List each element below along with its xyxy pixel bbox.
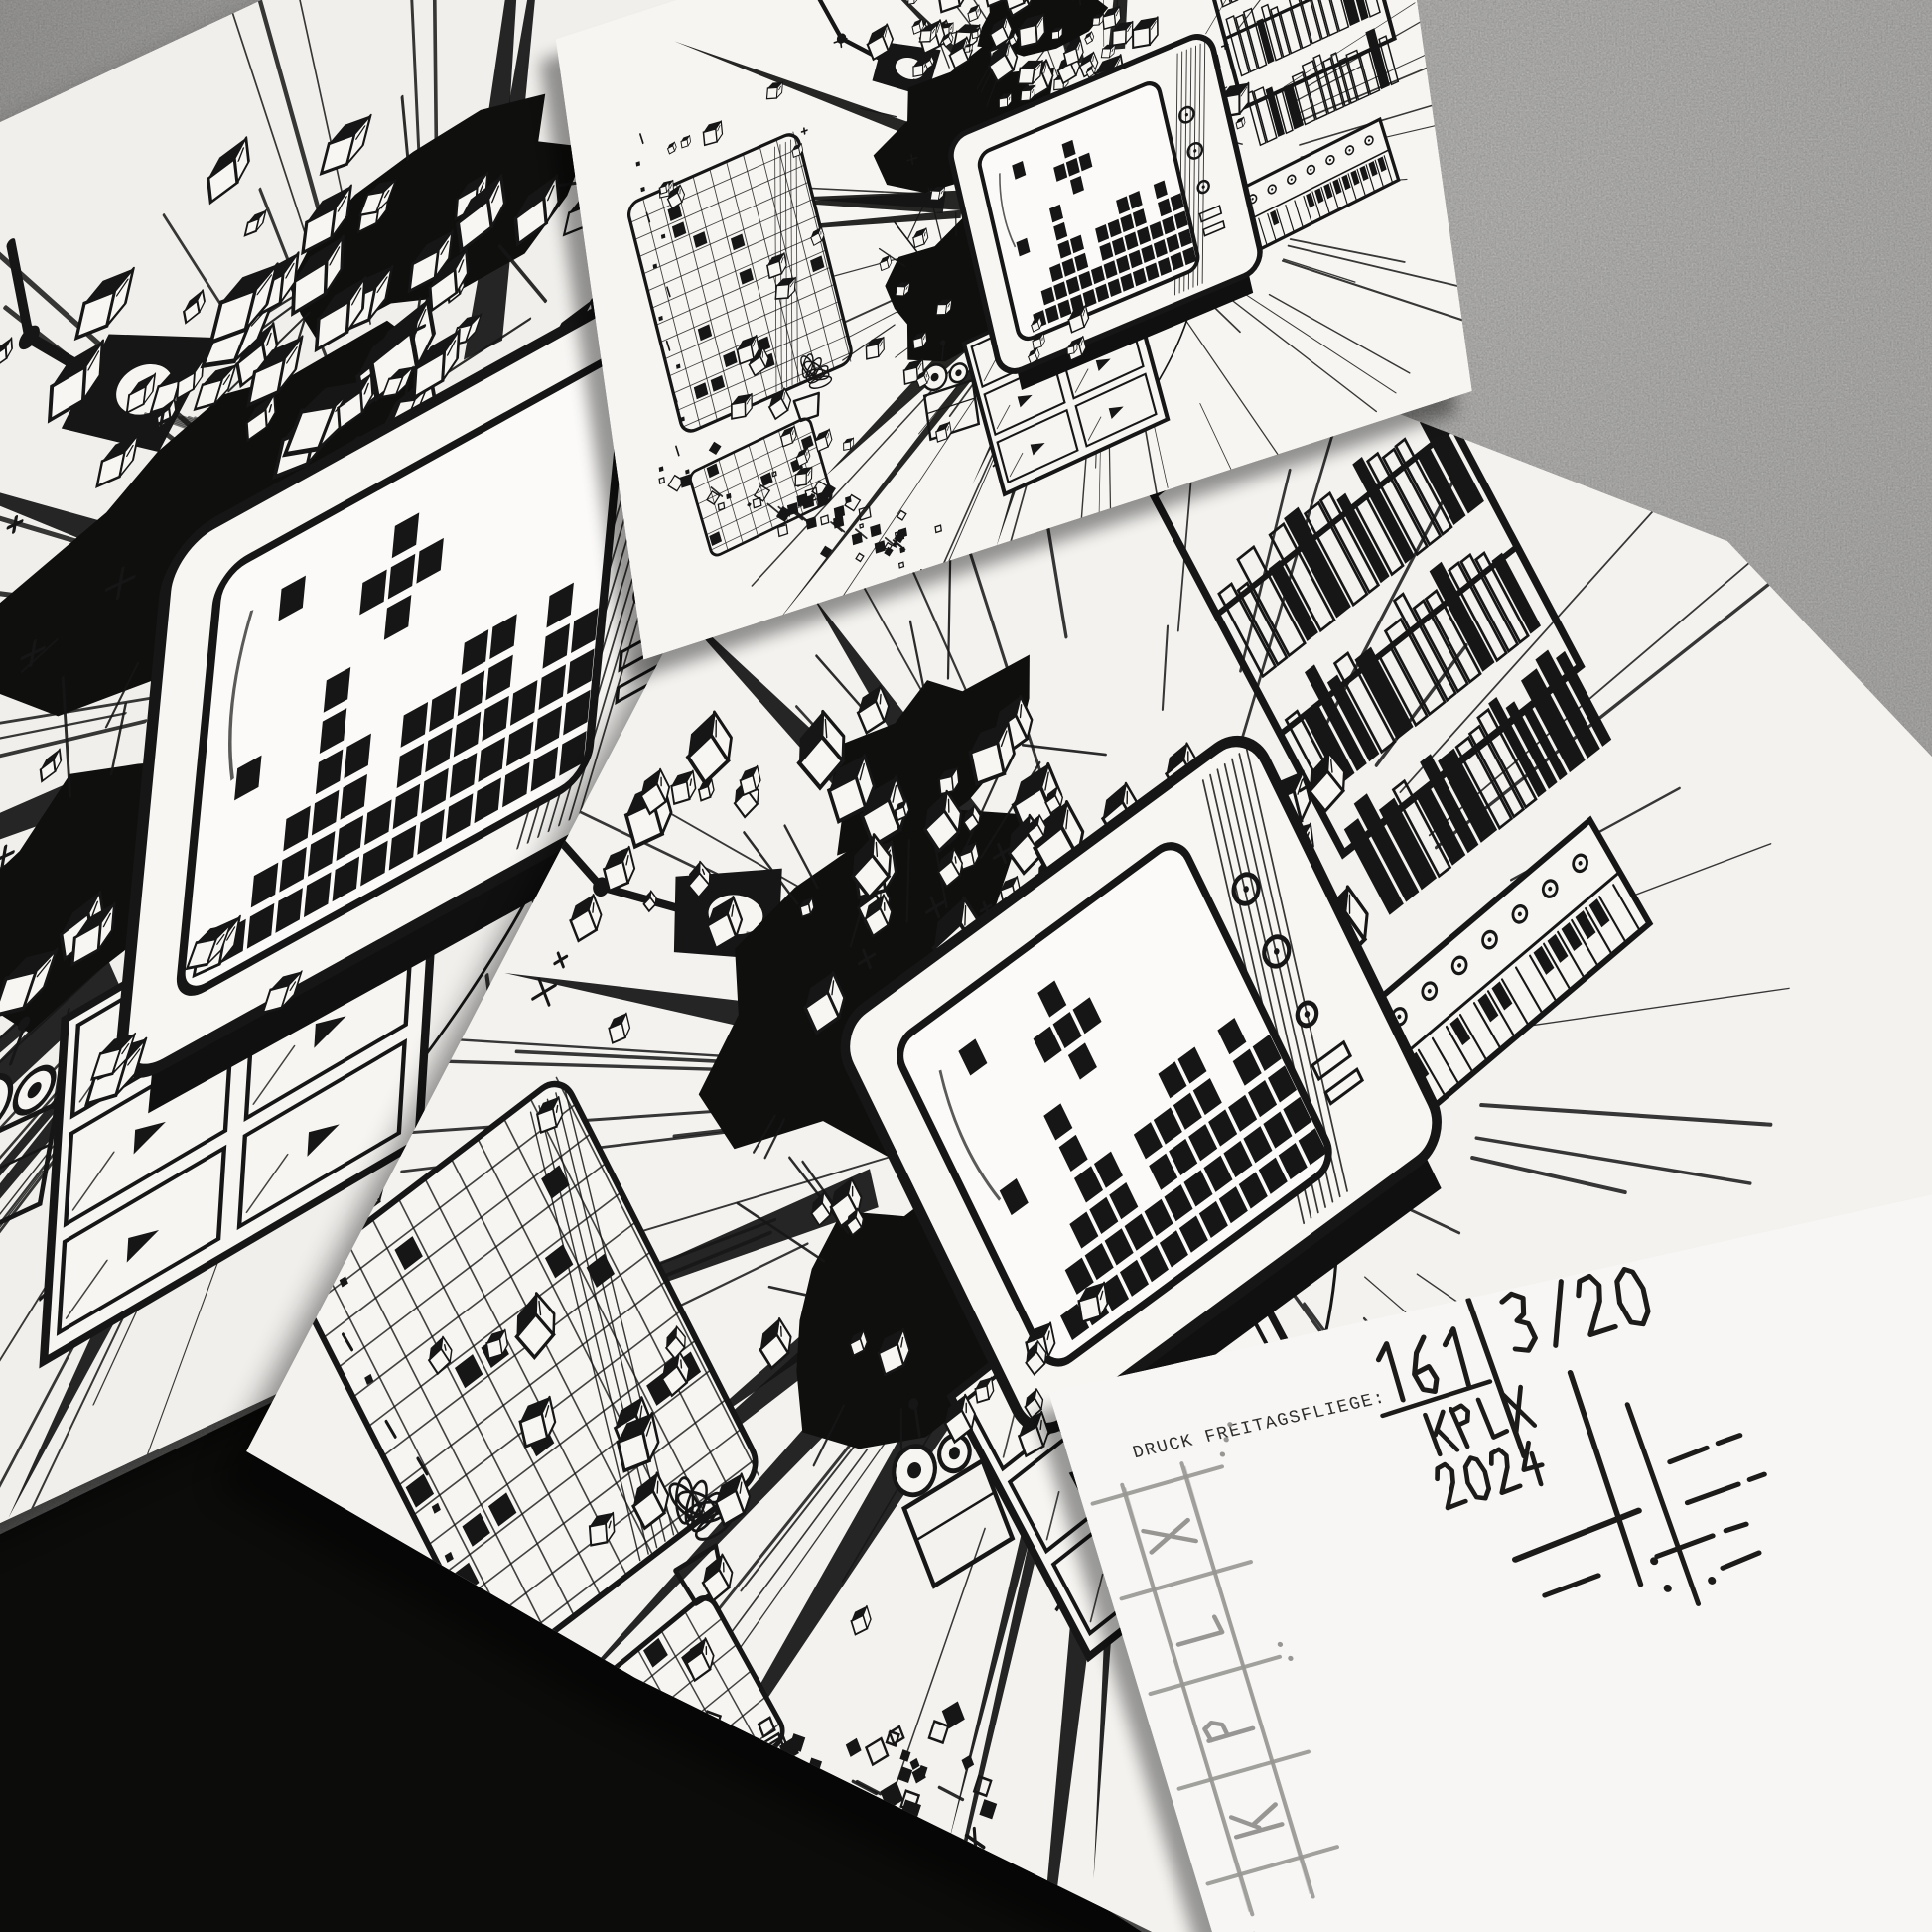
photo-scene: DRUCK FREITAGSFLIEGE: — [0, 0, 1932, 1932]
photo-canvas: DRUCK FREITAGSFLIEGE: — [0, 0, 1932, 1932]
